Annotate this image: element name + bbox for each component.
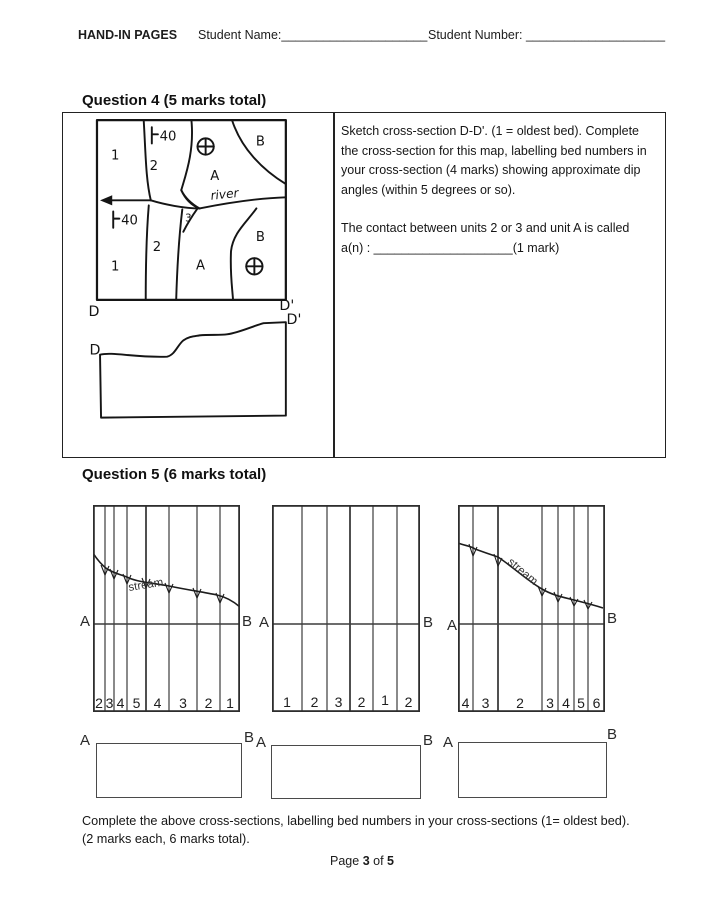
section-D-map: D bbox=[88, 304, 99, 320]
q5-map-3-border bbox=[459, 506, 604, 711]
contact-2-A-bottom bbox=[176, 209, 182, 299]
footer-page-total: 5 bbox=[387, 854, 394, 868]
q4-instructions: Sketch cross-section D-D'. (1 = oldest b… bbox=[341, 122, 659, 258]
q4-paragraph-1: Sketch cross-section D-D'. (1 = oldest b… bbox=[341, 122, 659, 200]
question4-heading: Question 4 (5 marks total) bbox=[82, 92, 266, 109]
dip-angle-top: 40 bbox=[160, 129, 177, 144]
q4-paragraph-2: The contact between units 2 or 3 and uni… bbox=[341, 219, 659, 239]
endpoint-B-label: B bbox=[244, 729, 254, 746]
q4-profile-box bbox=[100, 322, 286, 417]
cross-section-box-1 bbox=[96, 743, 242, 798]
document-title: HAND-IN PAGES bbox=[78, 28, 177, 42]
contact-A-B-top bbox=[232, 120, 286, 184]
bed-number: 2 bbox=[405, 694, 413, 710]
bed-number: 1 bbox=[381, 692, 389, 708]
strike-dip-icon bbox=[152, 127, 158, 143]
section-D-profile: D bbox=[89, 343, 100, 359]
contact-sliver-top bbox=[181, 190, 199, 208]
student-name-blank: _____________________ bbox=[281, 28, 427, 42]
dip-angle-left: 40 bbox=[121, 214, 138, 229]
unit-1-bottom: 1 bbox=[111, 259, 119, 274]
question4-divider bbox=[333, 113, 335, 457]
cross-section-box-2 bbox=[271, 745, 421, 799]
arrow-head-icon bbox=[100, 195, 112, 205]
q5-map-3: stream 4 3 2 3 4 5 6 bbox=[458, 505, 605, 712]
question5-heading: Question 5 (6 marks total) bbox=[82, 466, 266, 483]
bed-number: 1 bbox=[283, 694, 291, 710]
bed-number: 2 bbox=[311, 694, 319, 710]
bed-number: 3 bbox=[482, 695, 490, 711]
endpoint-A-label: A bbox=[80, 613, 90, 630]
q5-map-1: stream 2 3 4 5 4 3 2 1 bbox=[93, 505, 240, 712]
horizontal-bed-icon bbox=[246, 258, 262, 274]
student-name-field: Student Name:_____________________ bbox=[198, 28, 427, 42]
bed-number: 4 bbox=[117, 695, 125, 711]
unit-2-top: 2 bbox=[150, 159, 158, 174]
bed-number: 6 bbox=[593, 695, 601, 711]
unit-B-top: B bbox=[256, 134, 265, 149]
bed-number: 3 bbox=[546, 695, 554, 711]
q5-map-1-border bbox=[94, 506, 239, 711]
page-footer: Page 3 of 5 bbox=[0, 854, 724, 868]
unit-B-bottom: B bbox=[256, 230, 265, 245]
student-name-label: Student Name: bbox=[198, 28, 281, 42]
q5-instruction-line-1: Complete the above cross-sections, label… bbox=[82, 812, 672, 830]
bed-number: 2 bbox=[516, 695, 524, 711]
bed-number: 4 bbox=[462, 695, 470, 711]
footer-page-number: 3 bbox=[363, 854, 370, 868]
endpoint-B-label: B bbox=[242, 613, 252, 630]
q4-answer-prefix: a(n) : bbox=[341, 241, 370, 255]
horizontal-bed-icon bbox=[198, 138, 214, 154]
unit-1-top: 1 bbox=[111, 149, 119, 164]
q4-answer-line: a(n) : ____________________(1 mark) bbox=[341, 239, 659, 259]
stream-label: stream bbox=[505, 556, 540, 588]
bed-number: 3 bbox=[179, 695, 187, 711]
q4-answer-blank: ____________________ bbox=[374, 241, 513, 255]
section-Dprime-profile: D' bbox=[287, 312, 302, 328]
footer-of-word: of bbox=[373, 854, 383, 868]
contact-A-B-bottom bbox=[231, 208, 257, 299]
contact-1-2-bottom bbox=[146, 205, 149, 299]
q5-instruction-line-2: (2 marks each, 6 marks total). bbox=[82, 830, 672, 848]
unit-A-top: A bbox=[210, 169, 219, 184]
unit-A-bottom: A bbox=[196, 258, 205, 273]
bed-number: 2 bbox=[205, 695, 213, 711]
cross-section-box-3 bbox=[458, 742, 607, 798]
river-label: river bbox=[210, 186, 240, 203]
q4-map-sketch: 40 40 1 2 A B 3 2 1 A B river D D' D D' bbox=[63, 113, 331, 443]
endpoint-B-label: B bbox=[607, 610, 617, 627]
student-number-label: Student Number: bbox=[428, 28, 523, 42]
strike-dip-icon bbox=[113, 211, 119, 227]
question4-box: 40 40 1 2 A B 3 2 1 A B river D D' D D' … bbox=[62, 112, 666, 458]
worksheet-page: HAND-IN PAGES Student Name:_____________… bbox=[0, 0, 724, 907]
endpoint-A-label: A bbox=[80, 732, 90, 749]
endpoint-B-label: B bbox=[423, 732, 433, 749]
bed-number: 5 bbox=[133, 695, 141, 711]
student-number-field: Student Number: ____________________ bbox=[428, 28, 665, 42]
bed-number: 4 bbox=[154, 695, 162, 711]
q5-map-2: 1 2 3 2 1 2 bbox=[272, 505, 420, 712]
bed-number: 4 bbox=[562, 695, 570, 711]
endpoint-B-label: B bbox=[423, 614, 433, 631]
endpoint-B-label: B bbox=[607, 726, 617, 743]
bed-number: 5 bbox=[577, 695, 585, 711]
footer-page-word: Page bbox=[330, 854, 359, 868]
endpoint-A-label: A bbox=[447, 617, 457, 634]
endpoint-A-label: A bbox=[259, 614, 269, 631]
endpoint-A-label: A bbox=[256, 734, 266, 751]
bed-number: 3 bbox=[106, 695, 114, 711]
unit-2-bottom: 2 bbox=[153, 240, 161, 255]
bed-number: 2 bbox=[358, 694, 366, 710]
endpoint-A-label: A bbox=[443, 734, 453, 751]
unit-3: 3 bbox=[185, 214, 191, 225]
bed-number: 1 bbox=[226, 695, 234, 711]
bed-number: 2 bbox=[95, 695, 103, 711]
bed-number: 3 bbox=[335, 694, 343, 710]
q4-answer-suffix: (1 mark) bbox=[513, 241, 560, 255]
stream-line bbox=[93, 553, 240, 607]
student-number-blank: ____________________ bbox=[526, 28, 665, 42]
q5-instructions: Complete the above cross-sections, label… bbox=[82, 812, 672, 848]
